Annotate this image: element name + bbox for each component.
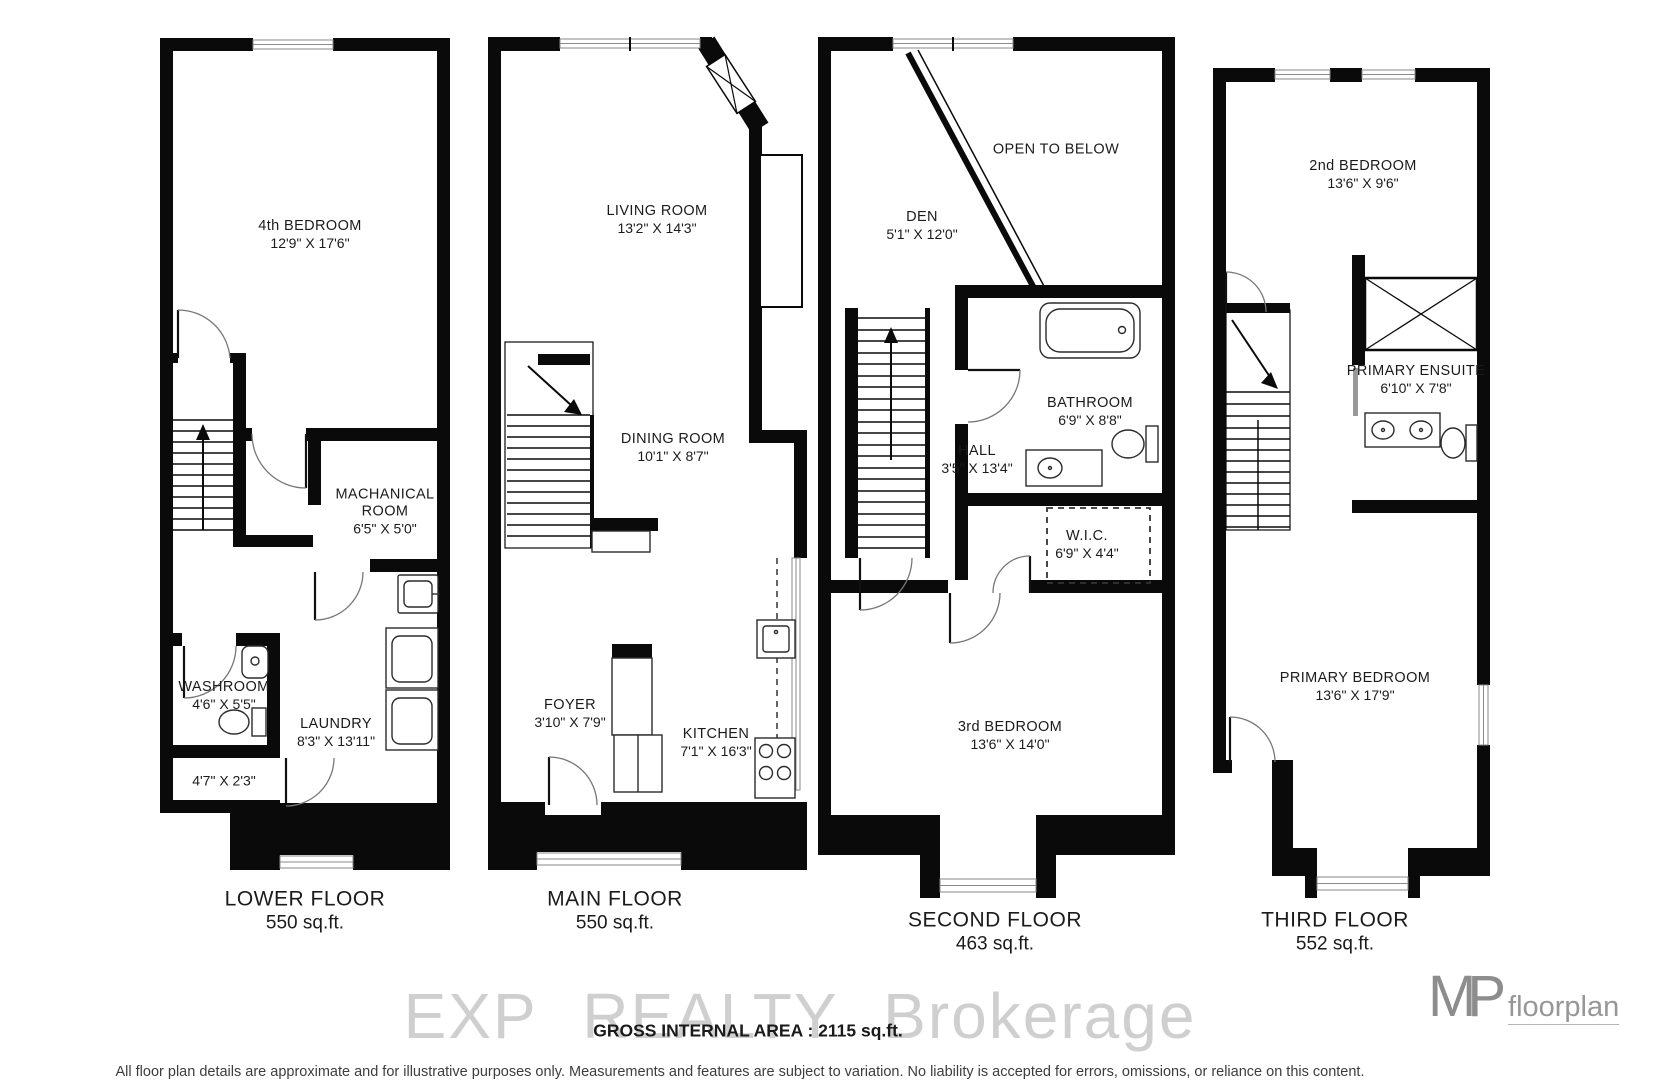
kitchen-sink-icon xyxy=(757,620,795,658)
room-label-bathroom: BATHROOM 6'9" X 8'8" xyxy=(1047,395,1133,429)
third-floor-plan xyxy=(1213,68,1490,898)
gross-internal-area: GROSS INTERNAL AREA : 2115 sq.ft. xyxy=(593,1021,903,1042)
open-to-below-railing xyxy=(908,50,1045,290)
room-label-washroom: WASHROOM 4'6" X 5'5" xyxy=(178,679,269,713)
room-label-primary-bedroom: PRIMARY BEDROOM 13'6" X 17'9" xyxy=(1280,670,1431,704)
room-label-4th-bedroom: 4th BEDROOM 12'9" X 17'6" xyxy=(258,218,362,252)
room-label-open-to-below: OPEN TO BELOW xyxy=(993,142,1119,159)
washroom-sink-icon xyxy=(242,646,268,678)
room-label-kitchen: KITCHEN 7'1" X 16'3" xyxy=(680,726,751,760)
floor-title-main: MAIN FLOOR 550 sq.ft. xyxy=(547,887,683,936)
fridge-icon xyxy=(614,735,662,792)
dryer-icon xyxy=(386,690,438,750)
third-windows xyxy=(1275,70,1488,890)
room-label-mechanical-room: MACHANICAL ROOM 6'5" X 5'0" xyxy=(319,487,451,538)
ensuite-toilet-icon xyxy=(1441,425,1477,461)
room-label-primary-ensuite: PRIMARY ENSUITE 6'10" X 7'8" xyxy=(1347,363,1485,397)
room-label-wic: W.I.C. 6'9" X 4'4" xyxy=(1055,528,1119,562)
floor-title-second: SECOND FLOOR 463 sq.ft. xyxy=(908,908,1082,957)
floorplan-canvas: 4th BEDROOM 12'9" X 17'6" MACHANICAL ROO… xyxy=(0,0,1680,1087)
third-stairs-icon xyxy=(1226,310,1290,530)
room-label-storage: 4'7" X 2'3" xyxy=(192,773,256,790)
room-label-foyer: FOYER 3'10" X 7'9" xyxy=(534,697,605,731)
washer-icon xyxy=(386,628,438,688)
main-doors xyxy=(549,757,597,805)
lower-stairs-icon xyxy=(173,420,233,530)
stair-landing xyxy=(592,531,650,552)
shower-icon xyxy=(1365,278,1477,350)
room-label-hall: HALL 3'5" X 13'4" xyxy=(941,443,1012,477)
room-label-den: DEN 5'1" X 12'0" xyxy=(886,209,957,243)
bathroom-vanity-icon xyxy=(1026,450,1102,486)
bathtub-icon xyxy=(1040,303,1140,358)
closet-unit xyxy=(612,658,652,735)
mp-floorplan-logo: M P floorplan xyxy=(1428,968,1619,1026)
stove-icon xyxy=(755,738,795,798)
fireplace-icon xyxy=(707,55,756,114)
floor-title-third: THIRD FLOOR 552 sq.ft. xyxy=(1261,908,1409,957)
laundry-sink-icon xyxy=(398,575,440,613)
room-label-laundry: LAUNDRY 8'3" X 13'11" xyxy=(297,716,375,750)
disclaimer-text: All floor plan details are approximate a… xyxy=(116,1064,1365,1080)
room-label-3rd-bedroom: 3rd BEDROOM 13'6" X 14'0" xyxy=(958,719,1062,753)
bathroom-toilet-icon xyxy=(1112,426,1158,462)
third-fixtures xyxy=(1365,413,1477,461)
double-vanity-icon xyxy=(1365,413,1440,447)
second-stairs-icon xyxy=(858,318,925,548)
main-stairs-icon xyxy=(505,342,593,548)
floor-title-lower: LOWER FLOOR 550 sq.ft. xyxy=(225,887,386,936)
second-doors xyxy=(860,370,1030,643)
media-niche xyxy=(760,155,802,307)
room-label-living-room: LIVING ROOM 13'2" X 14'3" xyxy=(606,203,707,237)
room-label-2nd-bedroom: 2nd BEDROOM 13'6" X 9'6" xyxy=(1309,158,1417,192)
logo-floorplan-text: floorplan xyxy=(1508,991,1619,1025)
room-label-dining-room: DINING ROOM 10'1" X 8'7" xyxy=(621,431,725,465)
logo-letter-p: P xyxy=(1467,968,1506,1026)
brokerage-watermark: EXP REALTY Brokerage xyxy=(404,979,1197,1053)
